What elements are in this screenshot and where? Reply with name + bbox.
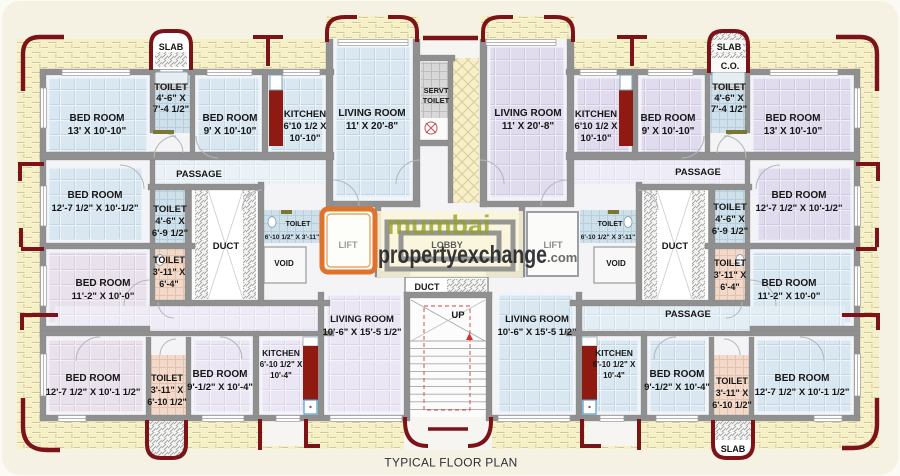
svg-text:PASSAGE: PASSAGE: [665, 309, 711, 320]
svg-text:6'-4": 6'-4": [720, 282, 739, 292]
svg-text:TYPICAL FLOOR PLAN: TYPICAL FLOOR PLAN: [384, 456, 517, 470]
svg-text:SLAB: SLAB: [721, 444, 746, 454]
svg-text:6'-10 1/2" X: 6'-10 1/2" X: [593, 360, 636, 369]
svg-text:TOILET: TOILET: [716, 376, 748, 386]
svg-text:9'-1/2" X 10'-4": 9'-1/2" X 10'-4": [644, 382, 710, 393]
svg-text:TOILET: TOILET: [712, 82, 746, 93]
svg-text:DUCT: DUCT: [415, 282, 440, 292]
svg-text:LIVING ROOM: LIVING ROOM: [494, 108, 561, 119]
svg-text:6'-10 1/2" X: 6'-10 1/2" X: [260, 360, 303, 369]
svg-text:3'-11" X: 3'-11" X: [714, 270, 746, 280]
svg-text:BED ROOM: BED ROOM: [772, 190, 827, 201]
svg-text:11' X 20'-8": 11' X 20'-8": [502, 121, 555, 132]
svg-text:TOILET: TOILET: [598, 221, 623, 228]
svg-text:TOILET: TOILET: [714, 258, 746, 268]
svg-text:BED ROOM: BED ROOM: [68, 190, 123, 201]
svg-text:BED ROOM: BED ROOM: [775, 373, 830, 384]
svg-text:VOID: VOID: [274, 259, 294, 268]
svg-text:10'-4": 10'-4": [603, 371, 625, 380]
svg-text:LIFT: LIFT: [339, 240, 358, 250]
svg-text:TOILET: TOILET: [153, 204, 187, 215]
svg-text:6'-10 1/2" X 3'-11": 6'-10 1/2" X 3'-11": [581, 234, 635, 241]
svg-text:6'-10 1/2": 6'-10 1/2": [147, 397, 186, 407]
svg-text:KITCHEN: KITCHEN: [262, 348, 300, 358]
svg-text:DUCT: DUCT: [213, 241, 240, 252]
svg-text:4'-6" X: 4'-6" X: [715, 214, 745, 225]
svg-text:10'-6" X 15'-5 1/2": 10'-6" X 15'-5 1/2": [322, 327, 401, 338]
svg-text:7'-4 1/2": 7'-4 1/2": [711, 104, 747, 115]
svg-text:6'-10 1/2": 6'-10 1/2": [712, 400, 751, 410]
svg-text:TOILET: TOILET: [154, 82, 188, 93]
svg-text:10'-6" X 15'-5 1/2": 10'-6" X 15'-5 1/2": [497, 327, 576, 338]
svg-text:12'-7 1/2" X 10'-1 1/2": 12'-7 1/2" X 10'-1 1/2": [755, 387, 850, 398]
svg-text:12'-7 1/2" X 10'-1/2": 12'-7 1/2" X 10'-1/2": [756, 203, 843, 214]
svg-text:9' X 10'-10": 9' X 10'-10": [204, 126, 257, 137]
svg-text:KITCHEN: KITCHEN: [595, 348, 633, 358]
svg-text:11'-2" X 10'-0": 11'-2" X 10'-0": [72, 291, 135, 302]
svg-text:C.O.: C.O.: [721, 61, 740, 71]
svg-text:PASSAGE: PASSAGE: [675, 167, 721, 178]
svg-text:4'-6" X: 4'-6" X: [156, 93, 186, 104]
svg-text:3'-11" X: 3'-11" X: [716, 388, 748, 398]
svg-text:4'-6" X: 4'-6" X: [155, 216, 185, 227]
svg-text:3'-11" X: 3'-11" X: [153, 267, 185, 277]
svg-text:BED ROOM: BED ROOM: [76, 278, 131, 289]
svg-text:6'-9 1/2": 6'-9 1/2": [712, 226, 748, 237]
svg-text:KITCHEN: KITCHEN: [284, 109, 326, 120]
svg-text:BED ROOM: BED ROOM: [203, 113, 258, 124]
svg-text:PASSAGE: PASSAGE: [176, 169, 222, 180]
svg-text:7'-4 1/2": 7'-4 1/2": [153, 104, 189, 115]
svg-text:propertyexchange: propertyexchange: [378, 241, 547, 269]
svg-text:9'-1/2" X 10'-4": 9'-1/2" X 10'-4": [187, 382, 253, 393]
svg-text:6'-4": 6'-4": [159, 279, 178, 289]
svg-text:6'-10 1/2" X 3'-11": 6'-10 1/2" X 3'-11": [265, 234, 319, 241]
svg-text:6'10 1/2 X: 6'10 1/2 X: [575, 121, 619, 132]
svg-text:UP: UP: [451, 310, 465, 321]
svg-text:KITCHEN: KITCHEN: [575, 109, 617, 120]
svg-text:DUCT: DUCT: [662, 241, 689, 252]
svg-text:12'-7 1/2" X 10'-1 1/2": 12'-7 1/2" X 10'-1 1/2": [46, 387, 141, 398]
svg-text:3'-11" X: 3'-11" X: [151, 385, 183, 395]
svg-text:12'-7 1/2" X 10'-1/2": 12'-7 1/2" X 10'-1/2": [52, 203, 139, 214]
svg-text:13' X 10'-10": 13' X 10'-10": [68, 126, 127, 137]
svg-text:TOILET: TOILET: [423, 96, 450, 105]
svg-text:BED ROOM: BED ROOM: [650, 369, 705, 380]
svg-text:mumbai: mumbai: [387, 210, 491, 240]
svg-text:4'-6" X: 4'-6" X: [714, 93, 744, 104]
svg-text:10'-10": 10'-10": [580, 133, 611, 144]
svg-text:BED ROOM: BED ROOM: [641, 113, 696, 124]
svg-text:TOILET: TOILET: [286, 221, 311, 228]
svg-text:11'-2" X 10'-0": 11'-2" X 10'-0": [758, 291, 821, 302]
svg-text:10'-4": 10'-4": [270, 371, 292, 380]
svg-text:LIVING ROOM: LIVING ROOM: [505, 314, 569, 325]
svg-text:6'-9 1/2": 6'-9 1/2": [152, 228, 188, 239]
svg-text:LIVING ROOM: LIVING ROOM: [330, 314, 394, 325]
svg-text:SLAB: SLAB: [717, 42, 742, 52]
svg-text:TOILET: TOILET: [151, 373, 183, 383]
svg-text:VOID: VOID: [606, 259, 626, 268]
svg-text:BED ROOM: BED ROOM: [193, 369, 248, 380]
svg-text:BED ROOM: BED ROOM: [66, 373, 121, 384]
svg-text:9' X 10'-10": 9' X 10'-10": [642, 126, 695, 137]
svg-text:10'-10": 10'-10": [289, 133, 320, 144]
svg-text:BED ROOM: BED ROOM: [762, 278, 817, 289]
svg-text:BED ROOM: BED ROOM: [766, 113, 821, 124]
svg-text:TOILET: TOILET: [153, 255, 185, 265]
svg-text:6'10 1/2 X: 6'10 1/2 X: [284, 121, 328, 132]
svg-text:TOILET: TOILET: [713, 202, 747, 213]
svg-text:LIVING ROOM: LIVING ROOM: [338, 108, 405, 119]
svg-text:.com: .com: [547, 250, 577, 265]
svg-text:BED ROOM: BED ROOM: [70, 113, 125, 124]
svg-text:SLAB: SLAB: [159, 42, 184, 52]
svg-text:13' X 10'-10": 13' X 10'-10": [764, 126, 823, 137]
svg-text:SERVT: SERVT: [424, 86, 449, 95]
svg-text:11' X 20'-8": 11' X 20'-8": [346, 121, 399, 132]
